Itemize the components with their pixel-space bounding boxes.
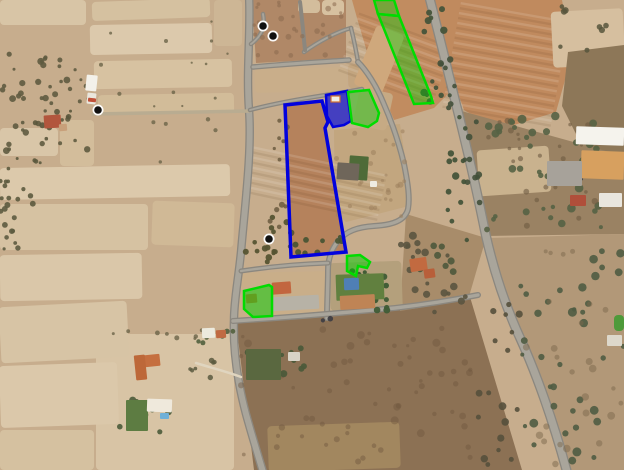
tree-icon [303, 415, 309, 421]
map-marker[interactable] [269, 32, 277, 40]
field [151, 201, 234, 248]
tree-icon [321, 31, 325, 35]
tree-icon [241, 335, 244, 338]
tree-icon [9, 95, 16, 102]
tree-icon [541, 438, 547, 444]
tree-icon [48, 85, 52, 89]
tree-icon [15, 245, 20, 250]
tree-icon [557, 442, 563, 448]
tree-icon [309, 416, 315, 422]
tree-icon [157, 429, 162, 434]
tree-icon [495, 123, 503, 131]
tree-icon [73, 139, 77, 143]
tree-icon [2, 206, 8, 212]
tree-icon [40, 62, 46, 68]
tree-icon [191, 62, 193, 64]
tree-icon [280, 370, 287, 377]
tree-icon [607, 412, 615, 420]
tree-icon [7, 147, 11, 151]
field [0, 430, 94, 470]
tree-icon [348, 204, 352, 208]
tree-icon [496, 448, 500, 452]
tree-icon [260, 35, 265, 40]
tree-icon [419, 383, 425, 389]
tree-icon [448, 101, 454, 107]
tree-icon [419, 379, 423, 383]
tree-icon [265, 259, 270, 264]
tree-icon [54, 109, 60, 115]
tree-icon [521, 337, 528, 344]
building [271, 295, 320, 311]
tree-icon [434, 252, 441, 259]
tree-icon [401, 129, 405, 133]
tree-icon [450, 410, 454, 414]
tree-icon [49, 101, 53, 105]
tree-icon [339, 11, 342, 14]
tree-icon [405, 244, 410, 249]
tree-icon [597, 24, 603, 30]
tree-icon [523, 291, 529, 297]
tree-icon [591, 455, 596, 460]
tree-icon [4, 235, 9, 240]
tree-icon [384, 138, 388, 142]
tree-icon [457, 115, 461, 119]
tree-icon [398, 361, 404, 367]
tree-icon [409, 232, 417, 240]
tree-icon [536, 432, 543, 439]
tree-icon [425, 282, 429, 286]
tree-icon [503, 312, 508, 317]
tree-icon [194, 334, 198, 338]
tree-icon [35, 79, 41, 85]
tree-icon [524, 135, 529, 140]
tree-icon [383, 283, 389, 289]
tree-icon [194, 367, 198, 371]
tree-icon [45, 137, 49, 141]
tree-icon [417, 429, 425, 437]
tree-icon [40, 96, 44, 100]
tree-icon [518, 284, 523, 289]
tree-icon [414, 390, 418, 394]
tree-icon [334, 156, 339, 161]
tree-icon [466, 444, 471, 449]
tree-icon [484, 227, 490, 233]
tree-icon [499, 402, 507, 410]
tree-icon [472, 175, 478, 181]
tree-icon [364, 339, 370, 345]
tree-icon [558, 145, 562, 149]
tree-icon [212, 360, 216, 364]
tree-icon [16, 157, 19, 160]
tree-icon [596, 440, 602, 446]
tree-icon [599, 248, 605, 254]
tree-icon [531, 442, 536, 447]
building [272, 281, 292, 294]
tree-icon [421, 249, 429, 257]
tree-icon [165, 332, 169, 336]
tree-icon [66, 116, 69, 119]
tree-icon [543, 423, 549, 429]
tree-icon [253, 23, 256, 26]
tree-icon [385, 174, 388, 177]
tree-icon [551, 345, 558, 352]
building [340, 294, 376, 310]
tree-icon [551, 205, 555, 209]
tree-icon [501, 418, 509, 426]
tree-icon [463, 126, 468, 131]
tree-icon [450, 268, 457, 275]
tree-icon [563, 445, 571, 453]
tree-icon [438, 371, 444, 377]
building [147, 399, 172, 413]
tree-icon [295, 249, 301, 255]
tree-icon [393, 403, 400, 410]
tree-icon [508, 147, 512, 151]
tree-icon [278, 16, 284, 22]
building [336, 162, 359, 180]
tree-icon [39, 161, 42, 164]
tree-icon [279, 424, 285, 430]
tree-icon [445, 253, 449, 257]
tree-icon [320, 422, 325, 427]
tree-icon [252, 240, 257, 245]
tree-icon [446, 158, 452, 164]
tree-icon [172, 91, 176, 95]
tree-icon [518, 115, 527, 124]
building [607, 335, 622, 346]
tree-icon [277, 4, 281, 8]
tree-icon [58, 64, 62, 68]
tree-icon [452, 157, 457, 162]
tree-icon [432, 310, 437, 315]
tree-icon [579, 321, 584, 326]
tree-icon [592, 198, 598, 204]
tree-icon [371, 150, 376, 155]
tree-icon [601, 355, 606, 360]
tree-icon [34, 159, 39, 164]
tree-icon [153, 105, 155, 107]
tree-icon [402, 179, 406, 183]
field [0, 362, 119, 428]
tree-icon [578, 283, 586, 291]
tree-icon [448, 93, 452, 97]
tree-icon [278, 158, 282, 162]
tree-icon [363, 270, 367, 274]
tree-icon [572, 447, 581, 456]
tree-icon [30, 201, 36, 207]
map-marker[interactable] [94, 106, 102, 114]
tree-icon [265, 245, 271, 251]
tree-icon [255, 249, 260, 254]
tree-icon [517, 166, 523, 172]
tree-icon [523, 208, 530, 215]
building [581, 150, 624, 179]
tree-icon [303, 237, 309, 243]
map-marker[interactable] [265, 235, 273, 243]
tree-icon [68, 87, 72, 91]
tree-icon [369, 205, 374, 210]
tree-icon [214, 97, 217, 100]
tree-icon [498, 120, 502, 124]
tree-icon [439, 93, 444, 98]
tree-icon [298, 345, 304, 351]
tree-icon [6, 142, 11, 147]
tree-icon [535, 198, 540, 203]
tree-icon [213, 128, 217, 132]
tree-icon [331, 361, 338, 368]
tree-icon [271, 229, 276, 234]
map-marker[interactable] [259, 22, 267, 30]
building [44, 114, 62, 128]
tree-icon [283, 204, 287, 208]
tree-icon [357, 331, 365, 339]
tree-icon [325, 6, 331, 12]
building [160, 413, 169, 419]
tree-icon [447, 56, 453, 62]
building [126, 400, 148, 431]
tree-icon [569, 369, 574, 374]
tree-icon [210, 39, 213, 42]
tree-icon [570, 408, 576, 414]
tree-icon [467, 157, 473, 163]
tree-icon [557, 362, 562, 367]
tree-icon [19, 80, 25, 86]
tree-icon [411, 337, 416, 342]
tree-icon [515, 407, 520, 412]
tree-icon [210, 20, 212, 22]
field [0, 164, 230, 200]
tree-icon [99, 63, 103, 67]
tree-icon [414, 240, 420, 246]
tree-icon [392, 143, 396, 147]
building [331, 96, 340, 102]
tree-icon [44, 109, 47, 112]
tree-icon [33, 120, 38, 125]
tree-icon [523, 189, 529, 195]
building [59, 124, 67, 132]
tree-icon [589, 365, 597, 373]
tree-icon [332, 2, 336, 6]
tree-icon [541, 207, 545, 211]
tree-icon [505, 348, 510, 353]
tree-icon [585, 48, 590, 53]
tree-icon [57, 58, 62, 63]
tree-icon [490, 308, 496, 314]
tree-icon [43, 57, 47, 61]
tree-icon [476, 415, 481, 420]
tree-icon [402, 159, 407, 164]
tree-icon [286, 34, 292, 40]
building [288, 352, 300, 361]
building [570, 195, 586, 206]
tree-icon [524, 223, 530, 229]
tree-icon [426, 10, 432, 16]
tree-icon [200, 340, 205, 345]
tree-icon [576, 216, 581, 221]
tree-icon [58, 141, 62, 145]
building [246, 349, 281, 380]
tree-icon [458, 200, 463, 205]
tree-icon [293, 242, 299, 248]
tree-icon [493, 214, 498, 219]
field [0, 204, 148, 250]
tree-icon [584, 190, 588, 194]
tree-icon [174, 335, 179, 340]
tree-icon [516, 133, 519, 136]
tree-icon [277, 136, 281, 140]
tree-icon [509, 165, 517, 173]
building [85, 74, 98, 91]
tree-icon [603, 307, 609, 313]
tree-icon [59, 80, 63, 84]
tree-icon [406, 344, 409, 347]
tree-icon [452, 84, 457, 89]
tree-icon [427, 370, 433, 376]
tree-icon [344, 379, 350, 385]
tree-icon [9, 228, 15, 234]
tree-icon [437, 60, 444, 67]
tree-icon [399, 214, 403, 218]
tree-icon [324, 443, 328, 447]
tree-icon [474, 119, 479, 124]
tree-icon [384, 297, 389, 302]
tree-icon [321, 318, 325, 322]
tree-icon [548, 384, 553, 389]
tree-icon [208, 375, 213, 380]
tree-icon [288, 53, 293, 58]
tree-icon [0, 87, 5, 92]
tree-icon [164, 39, 168, 43]
tree-icon [341, 359, 347, 365]
map-canvas[interactable] [0, 0, 624, 470]
tree-icon [355, 459, 361, 465]
parcel-green-left[interactable] [244, 285, 272, 317]
tree-icon [320, 238, 325, 243]
tree-icon [583, 410, 590, 417]
building [370, 181, 377, 187]
tree-icon [291, 15, 295, 19]
tree-icon [164, 122, 168, 126]
tree-icon [359, 180, 363, 184]
tree-icon [392, 344, 397, 349]
tree-icon [18, 90, 24, 96]
tree-icon [461, 423, 467, 429]
tree-icon [276, 434, 280, 438]
tree-icon [523, 424, 527, 428]
tree-icon [320, 326, 327, 333]
tree-icon [368, 161, 373, 166]
tree-icon [268, 219, 273, 224]
tree-icon [328, 316, 334, 322]
tree-icon [334, 436, 340, 442]
tree-icon [21, 187, 25, 191]
tree-icon [570, 249, 575, 254]
tree-icon [548, 251, 552, 255]
tree-icon [52, 91, 58, 97]
tree-icon [188, 367, 192, 371]
tree-icon [231, 329, 236, 334]
tree-icon [64, 77, 71, 84]
lawn-patch [614, 315, 624, 331]
tree-icon [440, 27, 447, 34]
tree-icon [389, 198, 393, 202]
tree-icon [292, 27, 296, 31]
tree-icon [441, 289, 448, 296]
tree-icon [587, 301, 592, 306]
tree-icon [465, 179, 471, 185]
tree-icon [568, 123, 572, 127]
tree-icon [439, 6, 445, 12]
tree-icon [372, 443, 377, 448]
tree-icon [28, 193, 33, 198]
tree-icon [277, 225, 282, 230]
tree-icon [430, 243, 437, 250]
tree-icon [450, 283, 458, 291]
tree-icon [407, 355, 411, 359]
tree-icon [109, 32, 112, 35]
tree-icon [328, 35, 332, 39]
tree-icon [3, 183, 8, 188]
tree-icon [590, 406, 599, 415]
tree-icon [508, 128, 514, 134]
tree-icon [493, 338, 498, 343]
building [88, 98, 96, 103]
tree-icon [458, 298, 465, 305]
tree-icon [7, 52, 12, 57]
tree-icon [384, 305, 389, 310]
tree-icon [244, 340, 252, 348]
tree-icon [373, 402, 377, 406]
tree-icon [468, 368, 472, 372]
tree-icon [425, 17, 432, 24]
tree-icon [534, 310, 541, 317]
tree-icon [151, 120, 155, 124]
tree-icon [555, 355, 560, 360]
tree-icon [398, 242, 404, 248]
map-viewport[interactable] [0, 0, 624, 470]
tree-icon [277, 119, 281, 123]
tree-icon [580, 310, 585, 315]
tree-icon [562, 7, 568, 13]
tree-icon [300, 34, 304, 38]
tree-icon [255, 6, 258, 9]
tree-icon [274, 50, 279, 55]
tree-icon [13, 123, 19, 129]
tree-icon [468, 455, 473, 460]
tree-icon [543, 128, 550, 135]
tree-icon [352, 131, 357, 136]
tree-icon [69, 110, 72, 113]
tree-icon [593, 418, 601, 426]
tree-icon [432, 412, 436, 416]
tree-icon [271, 251, 275, 255]
tree-icon [79, 78, 82, 81]
field [94, 59, 232, 89]
field [0, 0, 86, 25]
field [0, 253, 142, 301]
tree-icon [537, 170, 542, 175]
tree-icon [548, 215, 553, 220]
tree-icon [13, 241, 17, 245]
tree-icon [448, 150, 454, 156]
tree-icon [547, 299, 552, 304]
tree-icon [439, 244, 445, 250]
tree-icon [291, 386, 295, 390]
tree-icon [430, 79, 434, 83]
tree-icon [446, 208, 450, 212]
field [90, 23, 213, 55]
tree-icon [517, 138, 520, 141]
